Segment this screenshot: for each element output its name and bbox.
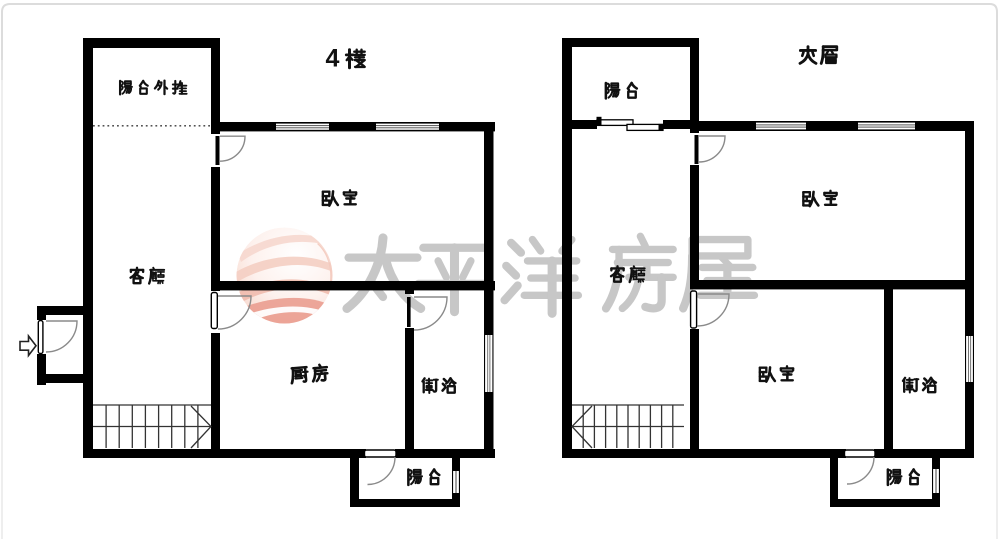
svg-text:4: 4 <box>326 45 340 73</box>
